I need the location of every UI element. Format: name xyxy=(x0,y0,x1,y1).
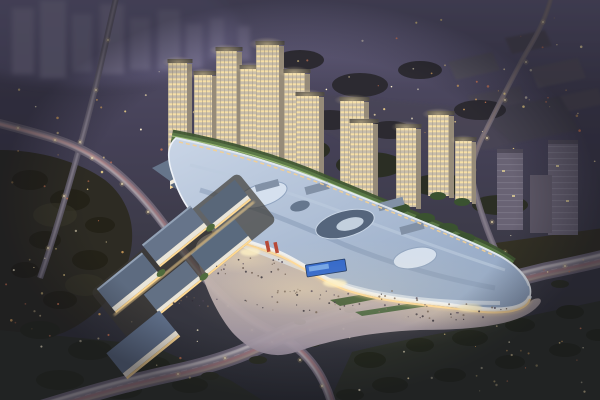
vignette xyxy=(0,0,600,400)
aerial-night-rendering xyxy=(0,0,600,400)
rendering-canvas xyxy=(0,0,600,400)
